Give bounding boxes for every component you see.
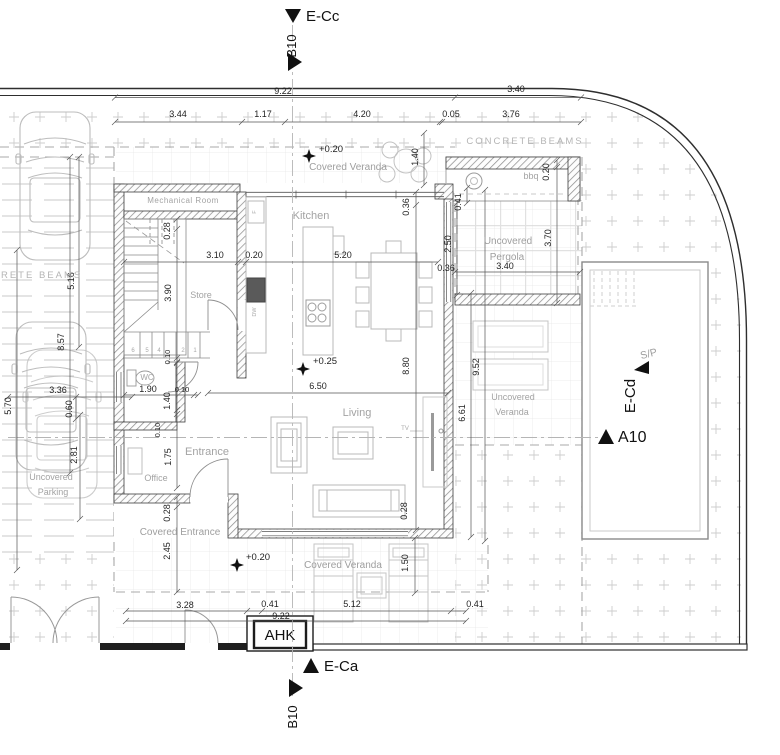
label-covered-veranda-top: Covered Veranda (309, 162, 387, 173)
swimming-pool (582, 262, 708, 539)
detail-label-a10: A10 (618, 429, 647, 446)
dim-245: 2.45 (162, 542, 172, 560)
section-arrow-up-icon (303, 658, 319, 673)
label-office: Office (144, 473, 167, 483)
dim-952: 9.52 (471, 358, 481, 376)
label-covered-veranda-bottom: Covered Veranda (304, 560, 382, 571)
dim-060: 0.60 (64, 400, 74, 418)
section-arrow-down-icon (285, 9, 301, 23)
floor-plan-drawing: AHK 9.22 3.40 3.44 (0, 0, 780, 755)
dim-020-bbq: 0.20 (541, 163, 551, 181)
dim-010-a: 0.10 (175, 385, 190, 394)
dim-650: 6.50 (309, 381, 327, 391)
dim-420: 4.20 (353, 109, 371, 119)
dim-281: 2.81 (69, 446, 79, 464)
ahk-label: AHK (265, 627, 296, 644)
label-uncovered-parking-1: Uncovered (29, 472, 73, 482)
section-label-b10-top: B10 (284, 34, 299, 57)
dim-top-right-total: 3.40 (507, 84, 525, 94)
dim-344: 3.44 (169, 109, 187, 119)
pergola-south-wall (455, 294, 580, 305)
dim-570: 5.70 (3, 397, 13, 415)
section-label-ecd: E-Cd (622, 379, 639, 413)
dim-512: 5.12 (343, 599, 361, 609)
dim-390: 3.90 (163, 284, 173, 302)
dim-140-veranda: 1.40 (410, 148, 420, 166)
label-entrance: Entrance (185, 446, 229, 458)
dim-041-pergola: 0.41 (453, 193, 463, 211)
dim-010-b: 0.10 (163, 350, 172, 365)
level-veranda-top: +0.20 (319, 144, 343, 155)
dim-top-total: 9.22 (274, 86, 292, 96)
label-wc: WC (140, 373, 154, 382)
label-concrete-beams-right: CONCRETE BEAMS (466, 136, 583, 147)
label-covered-entrance: Covered Entrance (140, 527, 221, 538)
dim-020-wall: 0.20 (245, 250, 263, 260)
label-bbq: bbq (523, 171, 538, 181)
label-uncovered-veranda-2: Veranda (495, 407, 529, 417)
label-uncovered-pergola-1: Uncovered (484, 236, 532, 247)
dim-370-pergola: 3.70 (543, 229, 553, 247)
section-arrow-right2-icon (289, 679, 303, 697)
dim-041-b2: 0.41 (466, 599, 484, 609)
section-label-ecc: E-Cc (306, 8, 340, 25)
dim-328: 3.28 (176, 600, 194, 610)
label-kitchen: Kitchen (293, 210, 330, 222)
dim-150-veranda: 1.50 (400, 554, 410, 572)
label-store: Store (190, 290, 212, 300)
dim-880: 8.80 (401, 357, 411, 375)
dim-175: 1.75 (163, 448, 173, 466)
label-dishwasher: DW (252, 307, 258, 317)
label-uncovered-veranda-1: Uncovered (491, 392, 535, 402)
bbq-counter (446, 157, 580, 201)
label-concrete-beams-left: CONCRETE BEAMS (0, 270, 82, 281)
dim-661: 6.61 (457, 404, 467, 422)
dim-028-entrance: 0.28 (162, 504, 172, 522)
dim-857: 8.57 (56, 333, 66, 351)
dim-028-living: 0.28 (399, 502, 409, 520)
level-entrance: +0.20 (246, 552, 270, 563)
dim-bottom-total: 9.22 (272, 611, 290, 621)
label-uncovered-parking-2: Parking (38, 487, 69, 497)
dim-036-ne: 0.36 (401, 198, 411, 216)
section-marker-bottom: E-Ca B10 (285, 658, 359, 729)
label-mechanical-room: Mechanical Room (147, 196, 219, 205)
section-marker-top: E-Cc B10 (284, 8, 340, 71)
section-label-b10-bottom: B10 (285, 705, 300, 728)
section-label-eca: E-Ca (324, 658, 359, 675)
level-living: +0.25 (313, 356, 337, 367)
dim-010-c: 0.10 (153, 423, 162, 438)
dim-376: 3.76 (502, 109, 520, 119)
dim-190-wc: 1.90 (139, 384, 157, 394)
dim-041-b1: 0.41 (261, 599, 279, 609)
dim-250-pergola: 2.50 (443, 235, 453, 253)
dim-140-wc: 1.40 (162, 392, 172, 410)
dim-036-pergola: 0.36 (437, 263, 455, 273)
dim-117: 1.17 (254, 109, 272, 119)
dim-028-stair: 0.28 (162, 222, 172, 240)
dim-520: 5.20 (334, 250, 352, 260)
label-tv: TV (401, 426, 409, 432)
floor-plan-sheet: AHK 9.22 3.40 3.44 (0, 0, 780, 755)
label-uncovered-pergola-2: Pergola (490, 252, 525, 263)
label-living: Living (343, 407, 372, 419)
dim-005: 0.05 (442, 109, 460, 119)
dim-310: 3.10 (206, 250, 224, 260)
dim-336: 3.36 (49, 385, 67, 395)
